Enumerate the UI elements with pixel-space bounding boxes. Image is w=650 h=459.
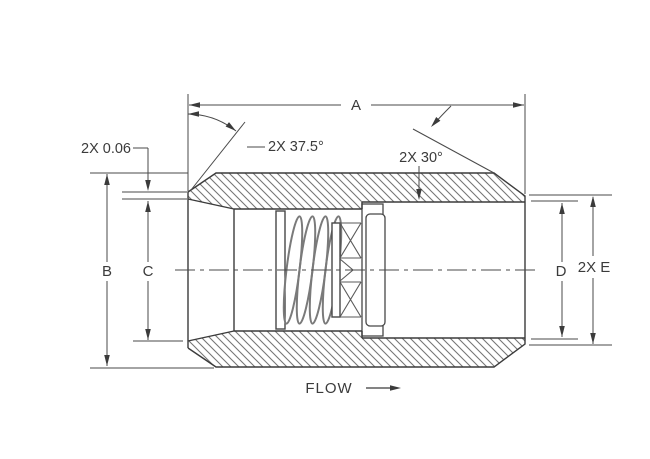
hatch-top-wall: [188, 173, 525, 209]
dimension-c: [122, 192, 187, 341]
drawing-canvas: A B C 2X 0.06 2X 37.5°: [0, 0, 650, 459]
hatch-bottom-wall: [188, 331, 525, 367]
chamfer-angle-label: 2X 30°: [399, 150, 443, 166]
dim-e-label: 2X E: [578, 259, 611, 276]
dim-d-label: D: [556, 263, 567, 280]
tip-flat-label: 2X 0.06: [81, 141, 131, 157]
flow-annotation: FLOW: [305, 380, 401, 397]
dim-a-label: A: [351, 97, 361, 114]
nose-angle-label: 2X 37.5°: [268, 139, 324, 155]
dim-c-label: C: [143, 263, 154, 280]
dimension-d: [531, 201, 578, 339]
tip-flat-callout: [133, 148, 151, 191]
valve-section-drawing: A B C 2X 0.06 2X 37.5°: [0, 0, 650, 459]
dim-b-label: B: [102, 263, 112, 280]
flow-arrow: [366, 385, 401, 391]
flow-label: FLOW: [305, 380, 352, 397]
